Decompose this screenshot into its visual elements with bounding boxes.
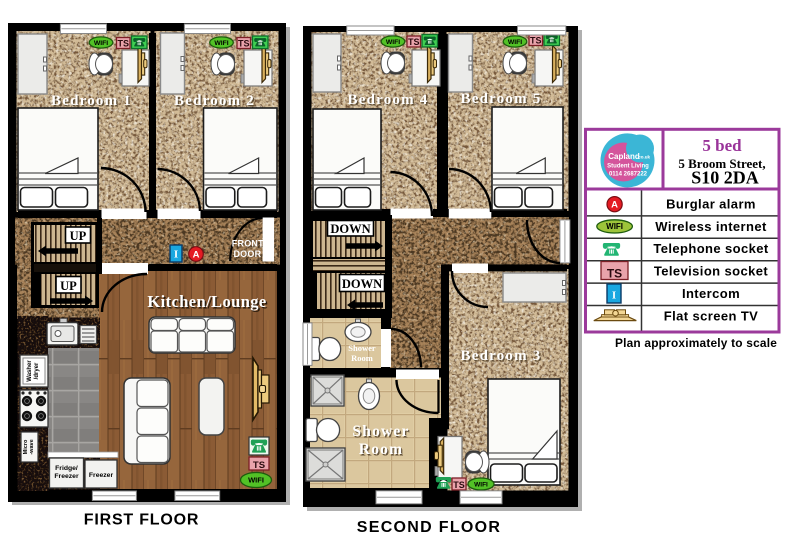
svg-text:Bedroom 3: Bedroom 3 — [461, 348, 542, 364]
svg-text:.co.uk: .co.uk — [637, 155, 651, 160]
svg-text:Capland: Capland — [608, 152, 640, 161]
svg-text:TS: TS — [117, 38, 129, 48]
svg-text:DOWN: DOWN — [342, 277, 382, 291]
svg-text:Room: Room — [351, 353, 373, 363]
svg-text:WIFI: WIFI — [386, 39, 400, 46]
svg-text:WIFI: WIFI — [474, 481, 488, 488]
svg-text:Bedroom 5: Bedroom 5 — [461, 91, 542, 107]
svg-text:Bedroom 4: Bedroom 4 — [348, 92, 429, 108]
svg-text:Student Living: Student Living — [607, 164, 649, 170]
svg-text:I: I — [612, 290, 616, 302]
svg-text:WIFI: WIFI — [606, 222, 623, 231]
svg-text:-wave: -wave — [29, 439, 35, 454]
svg-text:Bedroom 1: Bedroom 1 — [51, 93, 132, 109]
svg-text:TS: TS — [408, 37, 420, 47]
svg-text:WIFI: WIFI — [94, 40, 108, 47]
svg-text:Room: Room — [359, 441, 403, 458]
svg-text:TS: TS — [238, 38, 250, 48]
svg-text:Intercom: Intercom — [682, 286, 740, 301]
svg-text:Wireless internet: Wireless internet — [655, 219, 767, 234]
svg-text:DOWN: DOWN — [330, 222, 370, 236]
svg-text:A: A — [193, 249, 200, 260]
svg-text:Plan approximately to scale: Plan approximately to scale — [615, 336, 777, 350]
svg-text:WIFI: WIFI — [214, 40, 228, 47]
svg-text:UP: UP — [60, 279, 77, 293]
svg-text:Fridge/: Fridge/ — [55, 465, 78, 472]
svg-text:/dryer: /dryer — [34, 362, 40, 379]
svg-text:Television socket: Television socket — [654, 264, 768, 279]
svg-text:I: I — [174, 249, 178, 261]
svg-text:A: A — [611, 200, 618, 211]
svg-text:Washer: Washer — [27, 360, 33, 382]
svg-text:TS: TS — [253, 460, 265, 471]
svg-text:Bedroom 2: Bedroom 2 — [174, 93, 255, 109]
svg-text:Flat screen TV: Flat screen TV — [664, 308, 758, 323]
svg-text:Telephone socket: Telephone socket — [653, 241, 769, 256]
svg-text:DOOR: DOOR — [233, 249, 261, 259]
svg-text:Freezer: Freezer — [54, 473, 79, 480]
svg-text:TS: TS — [453, 480, 465, 490]
svg-text:0114 2687222: 0114 2687222 — [609, 172, 648, 178]
svg-text:FIRST FLOOR: FIRST FLOOR — [84, 512, 199, 529]
svg-text:S10 2DA: S10 2DA — [691, 168, 759, 188]
svg-text:SECOND FLOOR: SECOND FLOOR — [357, 519, 502, 536]
svg-text:WIFI: WIFI — [508, 39, 522, 46]
svg-text:Burglar alarm: Burglar alarm — [666, 197, 756, 212]
svg-text:Kitchen/Lounge: Kitchen/Lounge — [147, 292, 266, 311]
svg-text:Shower: Shower — [352, 423, 409, 440]
svg-text:Shower: Shower — [348, 343, 376, 353]
svg-text:TS: TS — [607, 266, 622, 280]
svg-text:WIFI: WIFI — [248, 475, 264, 484]
svg-text:Freezer: Freezer — [89, 472, 114, 479]
svg-text:5 bed: 5 bed — [702, 136, 742, 155]
svg-text:TS: TS — [530, 35, 542, 45]
svg-text:FRONT: FRONT — [232, 239, 264, 249]
svg-text:UP: UP — [70, 229, 87, 243]
